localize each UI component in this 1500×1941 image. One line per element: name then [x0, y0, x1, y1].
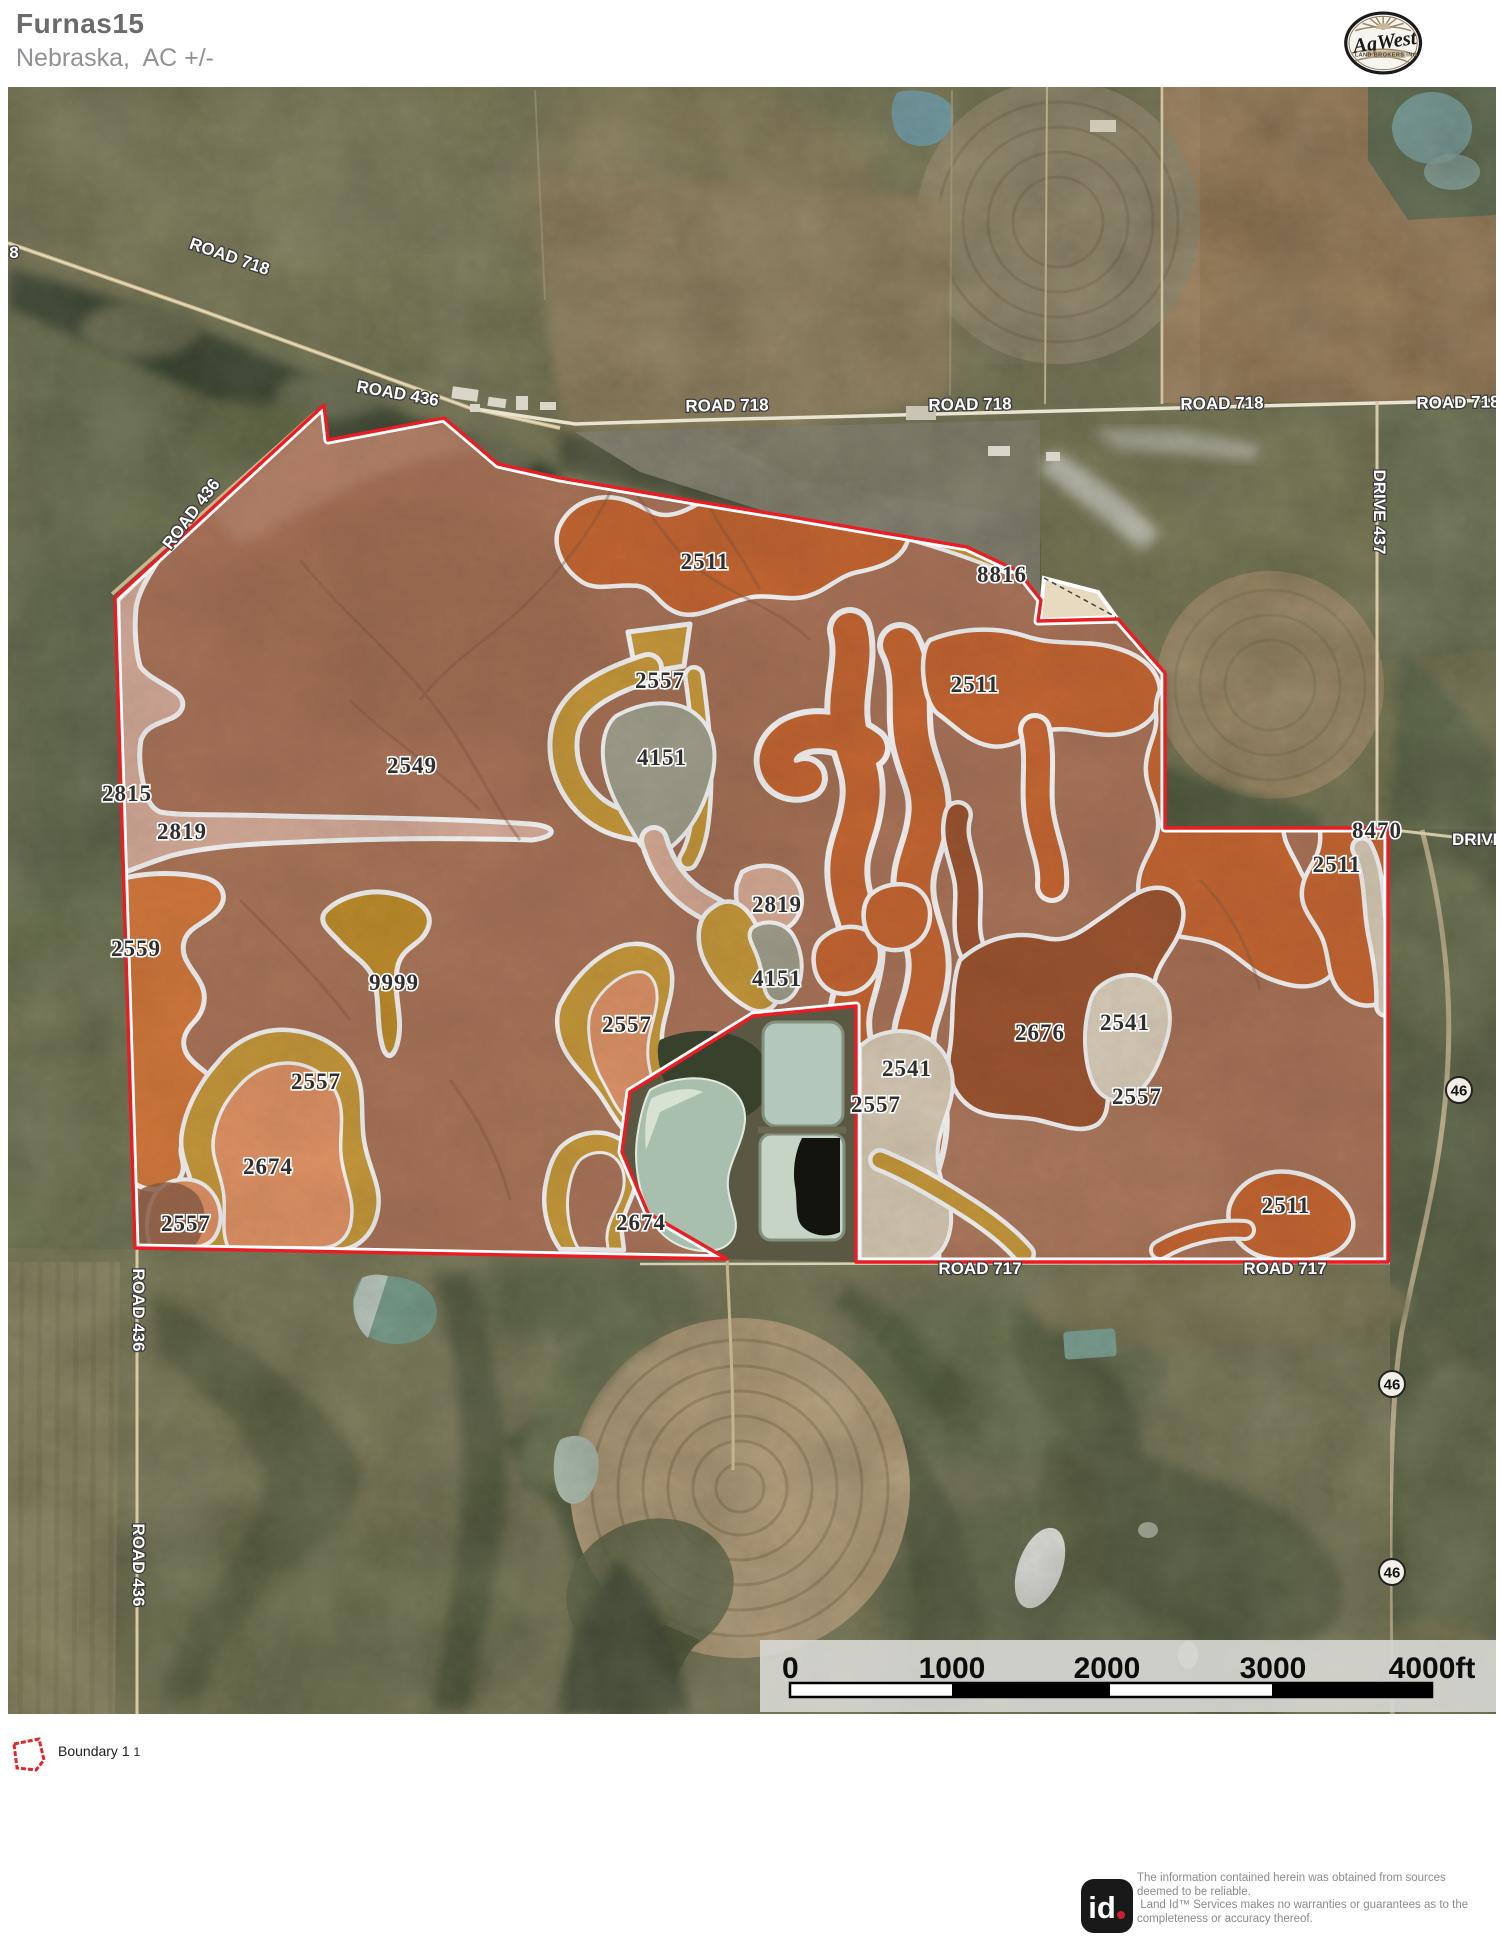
svg-text:2819: 2819 [157, 819, 207, 844]
svg-text:2557: 2557 [291, 1069, 341, 1094]
svg-text:2511: 2511 [1313, 852, 1362, 877]
svg-text:46: 46 [1384, 1565, 1401, 1582]
svg-text:ROAD 436: ROAD 436 [129, 1523, 148, 1606]
svg-text:0: 0 [782, 1652, 799, 1685]
svg-text:8470: 8470 [1352, 818, 1402, 843]
svg-text:2541: 2541 [882, 1056, 932, 1081]
svg-text:9999: 9999 [369, 970, 419, 995]
svg-text:DRIVE 437: DRIVE 437 [1370, 469, 1389, 554]
svg-text:2549: 2549 [387, 753, 437, 778]
svg-text:2511: 2511 [951, 672, 1000, 697]
svg-text:LAND BROKERS INC: LAND BROKERS INC [1355, 53, 1417, 59]
svg-text:ROAD 717: ROAD 717 [1243, 1259, 1326, 1278]
svg-text:DRIVE: DRIVE [1452, 830, 1496, 849]
svg-text:4000ft: 4000ft [1389, 1652, 1476, 1685]
svg-text:3000: 3000 [1240, 1652, 1307, 1685]
svg-text:2511: 2511 [681, 549, 730, 574]
svg-text:2557: 2557 [161, 1211, 211, 1236]
svg-text:8: 8 [9, 243, 18, 262]
svg-text:2815: 2815 [102, 781, 152, 806]
svg-text:ROAD 718: ROAD 718 [685, 395, 768, 415]
svg-text:ROAD 718: ROAD 718 [1180, 393, 1263, 413]
svg-text:2674: 2674 [616, 1210, 666, 1235]
svg-text:1000: 1000 [919, 1652, 986, 1685]
svg-text:2511: 2511 [1262, 1193, 1311, 1218]
svg-text:ROAD 436: ROAD 436 [129, 1268, 148, 1351]
svg-text:8816: 8816 [977, 562, 1027, 587]
svg-text:2557: 2557 [602, 1012, 652, 1037]
svg-text:2819: 2819 [752, 892, 802, 917]
svg-text:ROAD 718: ROAD 718 [928, 394, 1011, 414]
svg-text:2541: 2541 [1100, 1010, 1150, 1035]
svg-text:ROAD 718: ROAD 718 [1416, 392, 1496, 412]
svg-text:2557: 2557 [1112, 1084, 1162, 1109]
svg-text:2676: 2676 [1015, 1020, 1065, 1045]
svg-text:46: 46 [1451, 1083, 1468, 1100]
svg-text:4151: 4151 [752, 966, 802, 991]
svg-text:2557: 2557 [851, 1092, 901, 1117]
svg-text:2674: 2674 [243, 1154, 293, 1179]
svg-text:ROAD 717: ROAD 717 [938, 1259, 1021, 1278]
svg-text:4151: 4151 [637, 745, 687, 770]
svg-text:2000: 2000 [1074, 1652, 1141, 1685]
svg-text:2557: 2557 [635, 668, 685, 693]
svg-text:46: 46 [1384, 1377, 1401, 1394]
svg-text:id: id [1088, 1890, 1116, 1925]
svg-text:2559: 2559 [111, 936, 161, 961]
